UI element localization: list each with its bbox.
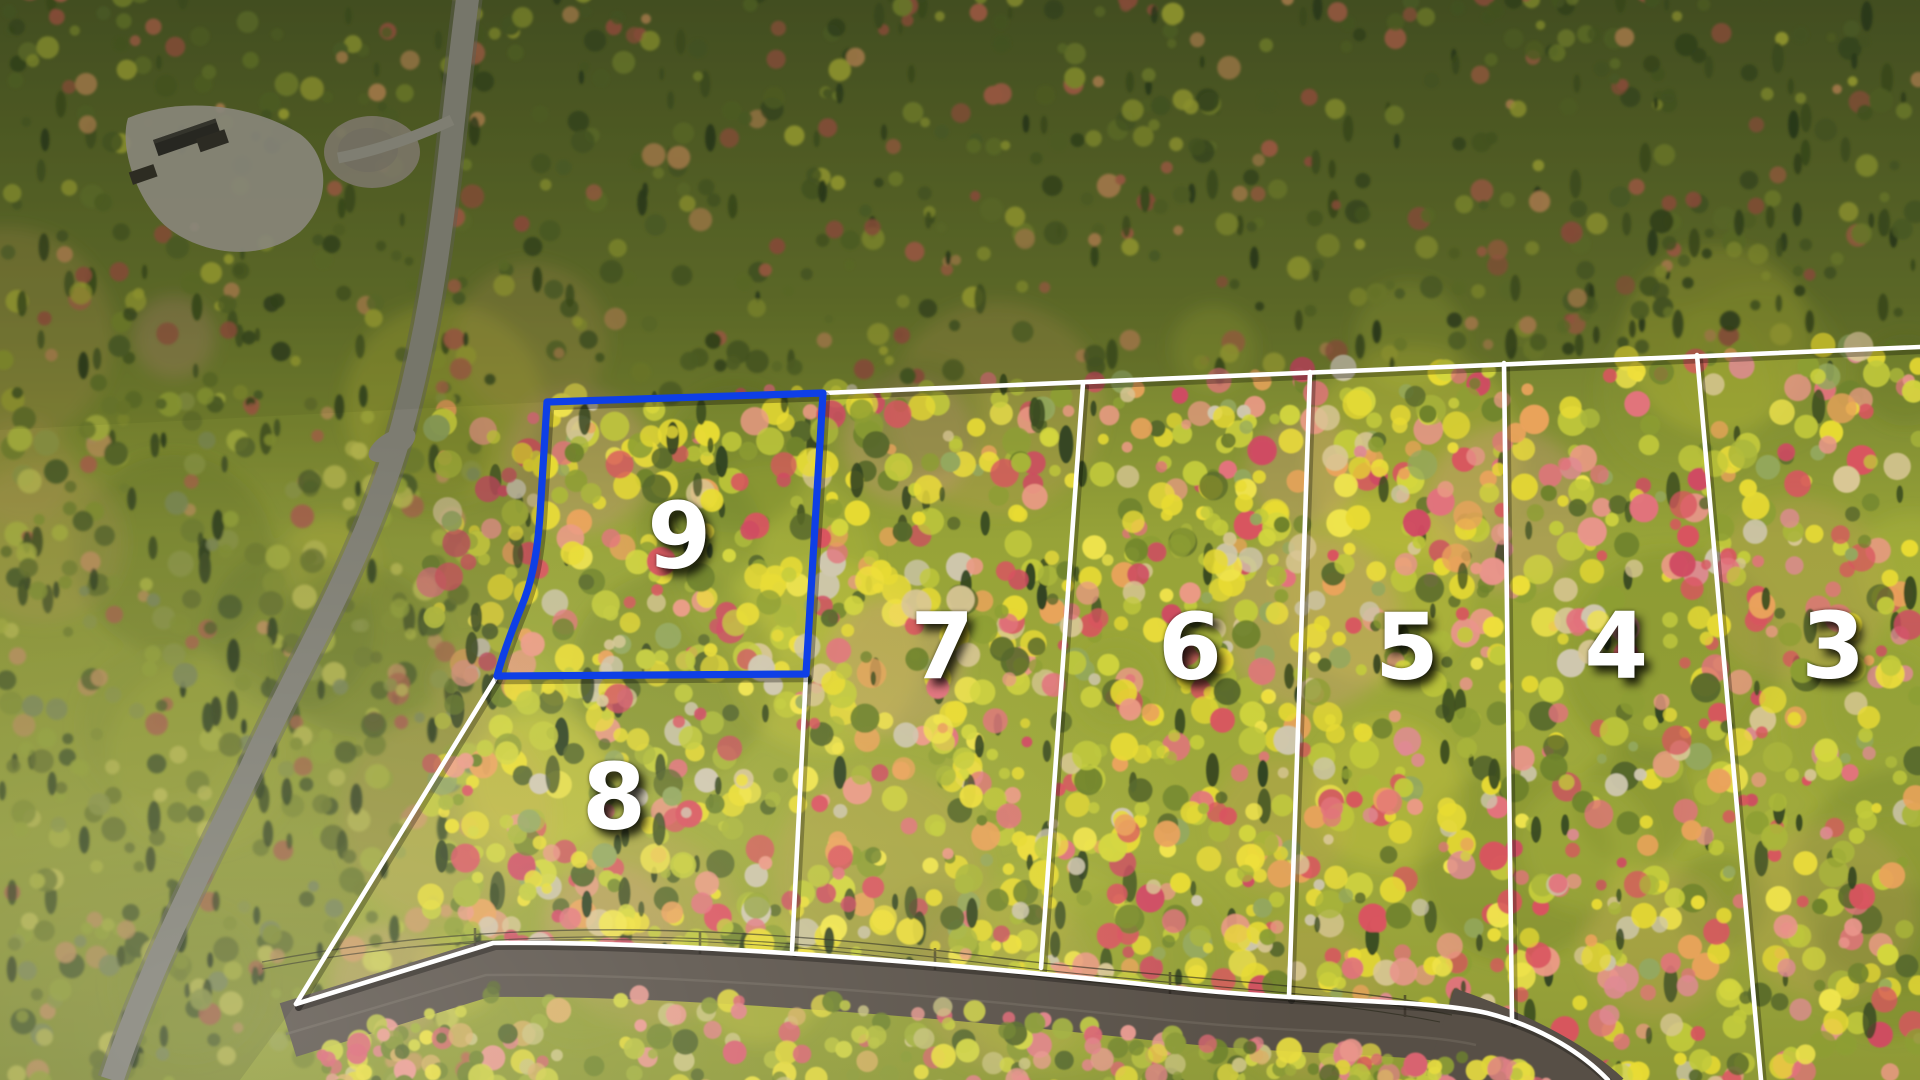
forest-aerial-photo [0,0,1920,1080]
lot-label-9: 9 [647,490,708,582]
lot-label-8: 8 [582,752,643,844]
lot-label-6: 6 [1158,602,1219,694]
lot-label-3: 3 [1801,600,1862,692]
lot-label-7: 7 [910,602,971,694]
lot-label-5: 5 [1375,602,1436,694]
sun-haze [0,0,1920,1080]
lot-label-4: 4 [1584,600,1645,692]
aerial-lot-map: 9876543 [0,0,1920,1080]
